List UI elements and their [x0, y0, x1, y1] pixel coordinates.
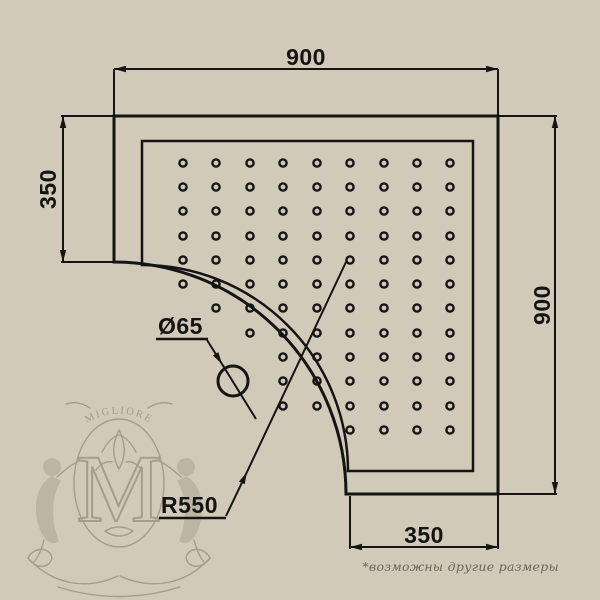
anti-slip-dot	[313, 280, 320, 287]
anti-slip-dot	[179, 183, 186, 190]
anti-slip-dot	[380, 426, 387, 433]
anti-slip-dot	[212, 159, 219, 166]
anti-slip-dot	[313, 304, 320, 311]
anti-slip-dot	[279, 402, 286, 409]
anti-slip-dot	[380, 232, 387, 239]
anti-slip-dot	[446, 304, 453, 311]
anti-slip-dot	[346, 402, 353, 409]
anti-slip-dot	[279, 159, 286, 166]
footnote-other-sizes: *возможны другие размеры	[362, 559, 559, 574]
anti-slip-dot	[212, 183, 219, 190]
anti-slip-dot	[346, 426, 353, 433]
anti-slip-dot	[380, 304, 387, 311]
anti-slip-dot	[380, 280, 387, 287]
anti-slip-dot	[212, 207, 219, 214]
anti-slip-dot	[413, 183, 420, 190]
anti-slip-dot	[413, 377, 420, 384]
drain-diameter-text: Ø65	[158, 313, 203, 339]
anti-slip-dot	[212, 232, 219, 239]
anti-slip-dot	[346, 377, 353, 384]
anti-slip-dot	[246, 232, 253, 239]
anti-slip-dot	[279, 256, 286, 263]
anti-slip-dot	[346, 183, 353, 190]
dim-value-right: 900	[529, 285, 555, 325]
anti-slip-dot	[313, 402, 320, 409]
dim-value-bottom: 350	[404, 522, 444, 548]
anti-slip-dot	[413, 280, 420, 287]
anti-slip-dot	[413, 232, 420, 239]
anti-slip-dot	[246, 207, 253, 214]
dimension-left-offset: 350	[35, 116, 114, 262]
anti-slip-dot	[313, 207, 320, 214]
anti-slip-dot	[446, 377, 453, 384]
anti-slip-dot	[380, 159, 387, 166]
anti-slip-dot	[279, 353, 286, 360]
anti-slip-dot	[313, 232, 320, 239]
anti-slip-dot	[212, 304, 219, 311]
anti-slip-dot	[346, 232, 353, 239]
anti-slip-dot	[246, 280, 253, 287]
anti-slip-dot	[380, 353, 387, 360]
watermark-cherub-left	[34, 458, 79, 562]
anti-slip-dot	[346, 304, 353, 311]
anti-slip-dot	[346, 256, 353, 263]
dimension-top-width: 900	[114, 44, 498, 116]
anti-slip-dot	[346, 207, 353, 214]
dim-value-left: 350	[35, 169, 61, 209]
anti-slip-dot	[346, 280, 353, 287]
anti-slip-dot	[446, 280, 453, 287]
shower-tray-drawing: MIGLIORE M	[0, 0, 600, 600]
tray-geometry	[114, 116, 498, 494]
anti-slip-dot	[413, 159, 420, 166]
anti-slip-dot	[313, 183, 320, 190]
anti-slip-dot	[279, 377, 286, 384]
anti-slip-dot	[446, 329, 453, 336]
anti-slip-dot	[313, 353, 320, 360]
anti-slip-dot	[313, 256, 320, 263]
corner-radius-text: R550	[161, 492, 218, 518]
anti-slip-dot	[346, 353, 353, 360]
technical-drawing-page: MIGLIORE M	[0, 0, 600, 600]
anti-slip-dot	[179, 280, 186, 287]
anti-slip-dot	[413, 304, 420, 311]
anti-slip-dot	[279, 304, 286, 311]
anti-slip-dot	[380, 402, 387, 409]
anti-slip-dot	[380, 377, 387, 384]
anti-slip-dot	[212, 256, 219, 263]
anti-slip-dot	[246, 329, 253, 336]
anti-slip-dot	[246, 183, 253, 190]
anti-slip-dot	[279, 183, 286, 190]
anti-slip-dot	[446, 353, 453, 360]
anti-slip-dot	[279, 280, 286, 287]
anti-slip-dot	[246, 256, 253, 263]
anti-slip-dot	[380, 183, 387, 190]
anti-slip-dot	[380, 256, 387, 263]
anti-slip-dot	[446, 232, 453, 239]
anti-slip-dot	[446, 256, 453, 263]
anti-slip-dot	[179, 232, 186, 239]
anti-slip-dot	[313, 159, 320, 166]
anti-slip-dot-grid	[179, 159, 453, 433]
anti-slip-dot	[413, 207, 420, 214]
anti-slip-dot	[413, 256, 420, 263]
anti-slip-dot	[179, 159, 186, 166]
anti-slip-dot	[246, 304, 253, 311]
anti-slip-dot	[246, 159, 253, 166]
dim-value-top: 900	[286, 44, 326, 70]
anti-slip-dot	[446, 426, 453, 433]
anti-slip-dot	[279, 232, 286, 239]
anti-slip-dot	[413, 329, 420, 336]
dimension-right-height: 900	[498, 116, 557, 494]
anti-slip-dot	[346, 159, 353, 166]
anti-slip-dot	[279, 207, 286, 214]
anti-slip-dot	[380, 207, 387, 214]
tray-inner-platform-edge	[142, 141, 473, 471]
anti-slip-dot	[446, 207, 453, 214]
anti-slip-dot	[446, 402, 453, 409]
dimension-bottom-offset: 350	[350, 494, 498, 549]
anti-slip-dot	[446, 183, 453, 190]
anti-slip-dot	[179, 207, 186, 214]
anti-slip-dot	[346, 329, 353, 336]
watermark-monogram: M	[76, 435, 161, 542]
watermark-brand-text: MIGLIORE	[83, 405, 155, 425]
anti-slip-dot	[413, 402, 420, 409]
anti-slip-dot	[380, 329, 387, 336]
anti-slip-dot	[446, 159, 453, 166]
anti-slip-dot	[179, 256, 186, 263]
anti-slip-dot	[413, 353, 420, 360]
anti-slip-dot	[413, 426, 420, 433]
tray-outer-edge	[114, 116, 498, 494]
